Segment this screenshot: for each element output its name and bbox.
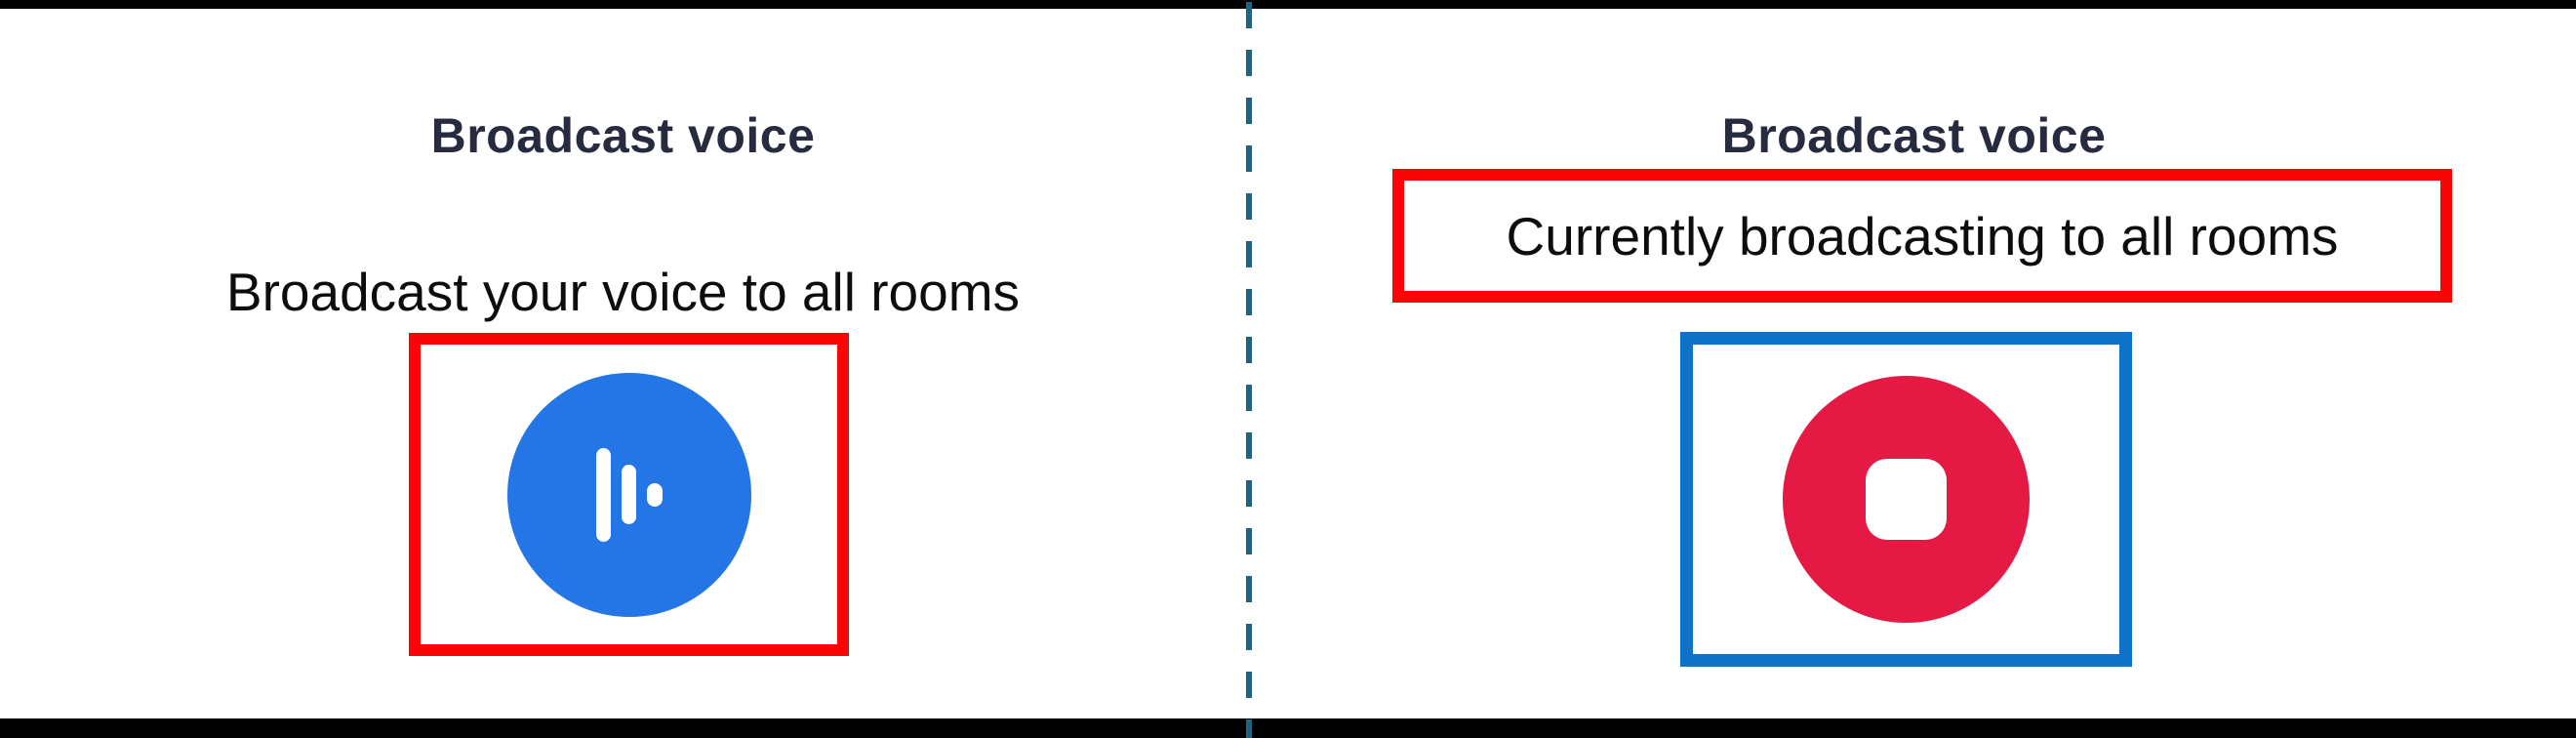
broadcast-voice-comparison: Broadcast voice Broadcast your voice to … — [0, 0, 2576, 738]
highlight-box-status-text: Currently broadcasting to all rooms — [1392, 169, 2452, 303]
highlight-box-stop-button — [1680, 332, 2132, 667]
stop-broadcast-button[interactable] — [1783, 376, 2030, 623]
stop-icon — [1866, 459, 1947, 540]
top-frame-border — [0, 0, 2576, 9]
highlight-box-start-button — [409, 333, 849, 656]
broadcast-status-text: Currently broadcasting to all rooms — [1507, 205, 2339, 267]
dashed-divider — [1246, 2, 1252, 738]
voice-wave-icon — [596, 448, 663, 542]
page-title: Broadcast voice — [0, 107, 1246, 164]
start-broadcast-button[interactable] — [507, 373, 751, 617]
page-title: Broadcast voice — [1252, 107, 2576, 164]
bottom-frame-border — [0, 718, 2576, 738]
broadcast-description-text: Broadcast your voice to all rooms — [0, 261, 1246, 323]
